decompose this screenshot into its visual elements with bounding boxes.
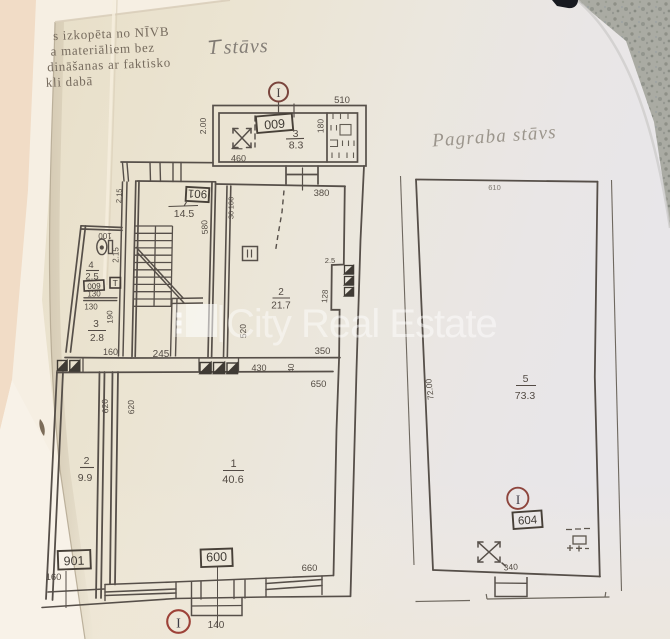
svg-text:kli dabā: kli dabā xyxy=(46,73,94,90)
svg-text:100: 100 xyxy=(227,197,236,210)
svg-text:30: 30 xyxy=(227,211,236,219)
svg-text:350: 350 xyxy=(315,346,331,357)
svg-text:140: 140 xyxy=(208,620,225,631)
svg-text:8.3: 8.3 xyxy=(289,140,304,152)
svg-text:180: 180 xyxy=(316,119,326,133)
svg-text:2: 2 xyxy=(278,287,284,298)
svg-text:460: 460 xyxy=(231,154,246,164)
svg-text:I: I xyxy=(516,492,520,507)
svg-text:5: 5 xyxy=(523,373,529,385)
svg-text:2: 2 xyxy=(84,455,90,467)
svg-text:I stāvs: I stāvs xyxy=(209,35,269,59)
svg-text:City Real Estate: City Real Estate xyxy=(226,302,497,346)
svg-text:40.6: 40.6 xyxy=(222,474,243,486)
svg-text:1: 1 xyxy=(230,458,236,470)
svg-text:2.8: 2.8 xyxy=(90,333,104,344)
svg-text:73.3: 73.3 xyxy=(515,390,536,402)
svg-text:620: 620 xyxy=(100,399,111,414)
svg-text:2.00: 2.00 xyxy=(198,117,208,134)
svg-text:580: 580 xyxy=(199,220,210,235)
svg-text:40: 40 xyxy=(287,363,296,372)
svg-text:160: 160 xyxy=(103,347,118,357)
svg-text:160: 160 xyxy=(46,572,62,583)
svg-text:2.5: 2.5 xyxy=(325,256,335,265)
svg-text:2.15: 2.15 xyxy=(112,247,121,263)
svg-text:660: 660 xyxy=(302,563,318,574)
svg-text:650: 650 xyxy=(311,379,327,390)
svg-text:610: 610 xyxy=(488,183,501,192)
svg-text:620: 620 xyxy=(126,400,136,415)
svg-text:14.5: 14.5 xyxy=(174,208,195,220)
svg-text:I: I xyxy=(276,86,280,100)
svg-text:4: 4 xyxy=(88,260,93,271)
svg-text:901: 901 xyxy=(188,187,208,200)
svg-text:340: 340 xyxy=(503,562,518,573)
svg-text:009: 009 xyxy=(206,549,227,564)
svg-text:009: 009 xyxy=(264,117,286,133)
svg-text:T: T xyxy=(113,278,118,288)
svg-text:130: 130 xyxy=(84,303,98,312)
svg-text:3: 3 xyxy=(93,319,99,330)
svg-text:I: I xyxy=(176,617,181,632)
svg-text:100: 100 xyxy=(98,231,112,240)
svg-text:9.9: 9.9 xyxy=(78,472,93,484)
svg-text:510: 510 xyxy=(334,95,350,106)
svg-text:380: 380 xyxy=(314,188,330,199)
svg-text:190: 190 xyxy=(105,310,114,324)
svg-text:901: 901 xyxy=(63,554,84,569)
svg-text:604: 604 xyxy=(518,514,539,527)
svg-text:430: 430 xyxy=(251,363,266,373)
svg-text:130: 130 xyxy=(87,289,101,298)
